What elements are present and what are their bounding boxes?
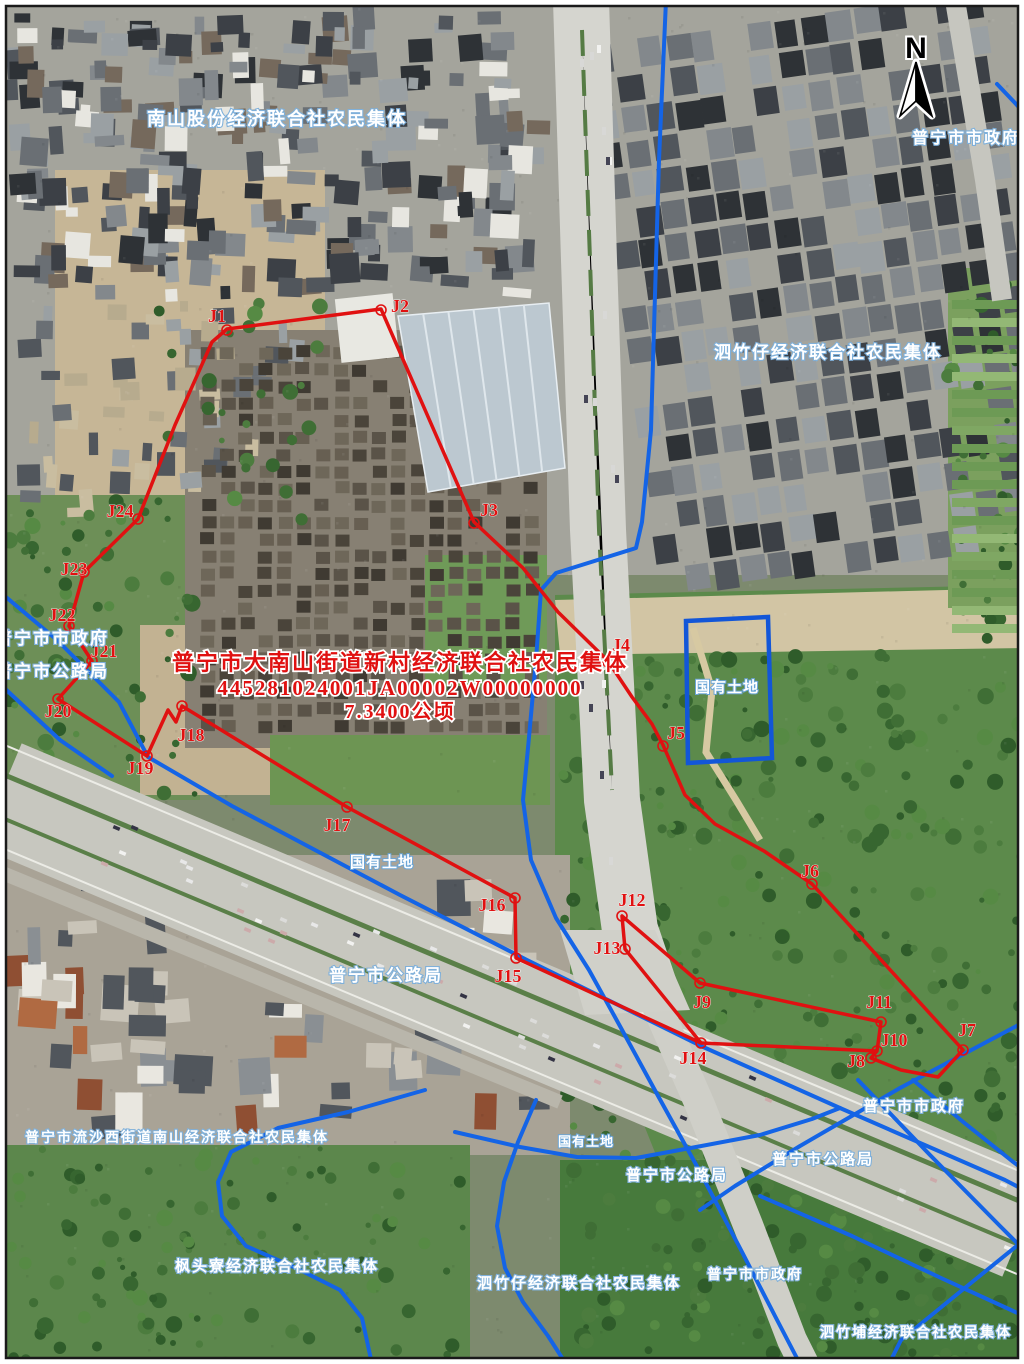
grain (381, 1206, 384, 1209)
grain (992, 19, 995, 22)
vegetation (852, 1033, 863, 1044)
vegetation (14, 650, 24, 660)
vegetation (984, 596, 991, 603)
grain (943, 467, 946, 470)
vertex-label-J24: J24 (107, 501, 134, 521)
village-roof (277, 500, 291, 512)
grain (286, 390, 289, 393)
village-roof (298, 705, 312, 717)
vegetation (282, 384, 298, 400)
grain (1002, 682, 1005, 685)
grain (761, 299, 764, 302)
building-block (6, 79, 18, 100)
village-roof (200, 685, 214, 697)
grain (492, 1246, 495, 1249)
grain (272, 97, 275, 100)
building-block (382, 161, 412, 188)
field-strip (952, 336, 1022, 345)
building-block (742, 191, 768, 221)
building-block (670, 65, 698, 96)
building-block (352, 27, 365, 49)
building-block (408, 38, 433, 62)
vertex-label-J15: J15 (495, 966, 522, 986)
building-block (895, 499, 922, 526)
building-block (39, 178, 67, 206)
building-block (130, 1039, 166, 1055)
grain (703, 698, 706, 701)
village-roof (258, 585, 272, 597)
grain (214, 1337, 217, 1340)
grain (907, 608, 910, 611)
grain (680, 887, 683, 890)
state-land-label: 国有土地 (695, 678, 759, 696)
vegetation (652, 1243, 661, 1252)
vehicle (602, 680, 606, 688)
building-block (835, 274, 859, 302)
building-block (884, 435, 908, 463)
village-roof (487, 551, 501, 563)
grain (651, 95, 654, 98)
village-roof (278, 413, 292, 425)
building-block (297, 137, 318, 153)
building-block (126, 168, 149, 193)
building-block (894, 303, 922, 334)
grain (853, 841, 856, 844)
building-block (783, 283, 810, 313)
building-block (392, 207, 409, 227)
grain (632, 365, 635, 368)
vegetation (602, 1316, 616, 1330)
state-land-label: 国有土地 (350, 853, 414, 871)
building-block (632, 170, 655, 197)
building-block (702, 495, 727, 527)
grain (846, 762, 849, 765)
grain (666, 830, 669, 833)
building-block (872, 136, 900, 168)
grain (31, 962, 34, 965)
vegetation (312, 299, 328, 315)
grain (343, 787, 346, 790)
village-roof (239, 398, 253, 410)
warehouse-roof (398, 303, 565, 492)
building-block (180, 472, 203, 490)
vegetation (848, 1262, 865, 1279)
building-block (634, 406, 661, 439)
grain (808, 624, 811, 627)
building-block (750, 453, 775, 480)
grain (956, 750, 959, 753)
vertex-label-J5: J5 (667, 723, 685, 743)
village-roof (219, 704, 233, 716)
vehicle (584, 395, 588, 403)
village-roof (353, 450, 367, 462)
grain (337, 568, 340, 571)
vegetation (241, 463, 250, 472)
grain (855, 1280, 858, 1283)
building-block (700, 95, 726, 124)
village-roof (315, 602, 329, 614)
vegetation (980, 452, 987, 459)
building-block (822, 179, 851, 210)
grain (319, 101, 322, 104)
vegetation (828, 706, 843, 721)
vegetation (92, 1293, 100, 1301)
building-block (866, 106, 890, 136)
vertex-label-J19: J19 (127, 758, 154, 778)
village-roof (316, 568, 330, 580)
vegetation (155, 497, 163, 505)
building-block (475, 114, 505, 144)
grain (756, 643, 759, 646)
vegetation (194, 1201, 208, 1215)
building-block (850, 374, 874, 401)
grain (323, 167, 326, 170)
vegetation (847, 669, 859, 681)
village-roof (278, 348, 292, 360)
village-roof (222, 380, 236, 392)
vegetation (952, 973, 968, 989)
vegetation (656, 787, 665, 796)
grain (519, 514, 522, 517)
grain (154, 20, 157, 23)
grain (290, 323, 293, 326)
vegetation (93, 602, 103, 612)
vegetation (303, 1332, 315, 1344)
land-cover-patch (270, 735, 550, 805)
vegetation (227, 1180, 234, 1187)
vegetation (827, 663, 833, 669)
building-block (229, 62, 247, 73)
grain (149, 1094, 152, 1097)
building-block (142, 40, 157, 50)
vegetation (806, 893, 822, 909)
village-roof (372, 432, 386, 444)
grain (450, 1184, 453, 1187)
vegetation (774, 1047, 787, 1060)
vegetation (662, 703, 668, 709)
vegetation (877, 685, 890, 698)
grain (686, 197, 689, 200)
vegetation (560, 915, 569, 924)
grain (645, 720, 648, 723)
building-block (71, 187, 88, 204)
grain (784, 613, 787, 616)
building-block (306, 277, 334, 292)
field-strip (952, 372, 1022, 381)
building-block (491, 32, 515, 51)
building-block (791, 551, 815, 580)
building-block (836, 74, 864, 105)
grain (798, 370, 801, 373)
building-block (749, 55, 773, 85)
vegetation (974, 1089, 987, 1102)
grain (48, 230, 51, 233)
building-block (115, 1092, 142, 1130)
vegetation (747, 1288, 752, 1293)
village-roof (258, 552, 272, 564)
vegetation (227, 1197, 240, 1210)
grain (527, 1099, 530, 1102)
village-roof (373, 601, 387, 613)
grain (346, 423, 349, 426)
village-roof (257, 703, 271, 715)
grain (204, 965, 207, 968)
vegetation (962, 962, 970, 970)
village-roof (354, 583, 368, 595)
building-block (833, 444, 860, 475)
vegetation (977, 688, 993, 704)
grain (822, 837, 825, 840)
vegetation (149, 1295, 157, 1303)
grain (704, 507, 707, 510)
building-block (873, 536, 898, 563)
building-block (787, 118, 814, 150)
building-block (388, 226, 413, 253)
vegetation (302, 420, 317, 435)
grain (224, 1243, 227, 1246)
grain (66, 1164, 69, 1167)
grain (837, 152, 840, 155)
vegetation (819, 1245, 833, 1259)
vegetation (597, 1293, 610, 1306)
building-block (165, 34, 192, 57)
village-roof (409, 637, 423, 649)
grain (752, 798, 755, 801)
grain (883, 12, 886, 15)
building-block (138, 207, 149, 231)
building-block (166, 319, 181, 332)
vegetation (730, 775, 741, 786)
building-block (108, 304, 127, 320)
grain (262, 1082, 265, 1085)
grain (222, 514, 225, 517)
village-roof (431, 585, 445, 597)
building-block (477, 11, 501, 24)
grain (746, 627, 749, 630)
building-block (694, 228, 721, 258)
grain (841, 825, 844, 828)
village-roof (469, 552, 483, 564)
vertex-label-J23: J23 (61, 559, 88, 579)
village-roof (449, 551, 463, 563)
vegetation (169, 752, 176, 759)
grain (939, 1093, 942, 1096)
building-block (286, 219, 316, 235)
village-roof (411, 585, 425, 597)
vegetation (692, 1238, 706, 1252)
grain (279, 497, 282, 500)
grain (696, 361, 699, 364)
village-roof (336, 379, 350, 391)
village-roof (200, 532, 214, 544)
village-roof (391, 533, 405, 545)
vegetation (102, 1231, 119, 1248)
vegetation (908, 1348, 916, 1356)
village-roof (201, 620, 215, 632)
grain (394, 1141, 397, 1144)
vegetation (658, 824, 667, 833)
building-block (666, 33, 694, 61)
grain (881, 636, 884, 639)
vegetation (775, 929, 790, 944)
village-roof (354, 637, 368, 649)
vehicle (590, 52, 594, 60)
building-block (726, 258, 752, 289)
grain (336, 522, 339, 525)
field-strip (952, 480, 1022, 489)
building-block (912, 230, 938, 262)
grain (863, 101, 866, 104)
grain (251, 33, 254, 36)
grain (178, 586, 181, 589)
building-block (48, 126, 63, 155)
vegetation (145, 1167, 153, 1175)
village-roof (334, 467, 348, 479)
cadastral-map-canvas: J1J2J3J4J5J6J7J8J9J10J11J12J13J14J15J16J… (0, 0, 1024, 1364)
grain (924, 320, 927, 323)
grain (179, 1164, 182, 1167)
building-block (368, 211, 388, 223)
village-roof (335, 635, 349, 647)
building-block (815, 113, 840, 140)
vegetation (219, 409, 226, 416)
grain (85, 1189, 88, 1192)
vegetation (370, 1238, 377, 1245)
grain (223, 610, 226, 613)
vegetation (132, 1290, 148, 1306)
vegetation (746, 878, 760, 892)
vegetation (192, 791, 198, 797)
grain (714, 476, 717, 479)
vegetation (844, 1239, 857, 1252)
building-block (94, 60, 106, 78)
building-block (627, 336, 654, 364)
grain (693, 589, 696, 592)
grain (27, 1108, 30, 1111)
grain (954, 576, 957, 579)
building-block (719, 223, 749, 254)
village-roof (506, 517, 520, 529)
vegetation (810, 732, 825, 747)
vertex-label-J22: J22 (49, 605, 76, 625)
grain (648, 287, 651, 290)
owner-label: 普宁市市政府 (0, 628, 109, 648)
grain (873, 103, 876, 106)
village-roof (314, 398, 328, 410)
grain (475, 542, 478, 545)
vegetation (891, 829, 901, 839)
vegetation (730, 931, 736, 937)
building-block (238, 1057, 272, 1095)
grain (572, 900, 575, 903)
village-roof (447, 535, 461, 547)
village-roof (335, 433, 349, 445)
village-roof (506, 533, 520, 545)
village-roof (468, 721, 482, 733)
grain (753, 1010, 756, 1013)
building-block (165, 229, 185, 242)
vegetation (762, 1179, 774, 1191)
vegetation (12, 1173, 24, 1185)
village-roof (449, 567, 463, 579)
building-block (149, 411, 164, 422)
north-arrow-label: N (905, 32, 927, 65)
grain (486, 646, 489, 649)
cadastral-map-page: J1J2J3J4J5J6J7J8J9J10J11J12J13J14J15J16J… (0, 0, 1024, 1364)
grain (304, 16, 307, 19)
vegetation (853, 1006, 860, 1013)
grain (387, 395, 390, 398)
building-block (785, 315, 814, 343)
grain (348, 757, 351, 760)
grain (88, 111, 91, 114)
vegetation (165, 516, 171, 522)
village-roof (373, 619, 387, 631)
building-block (89, 432, 98, 455)
building-block (29, 421, 39, 443)
vertex-label-J9: J9 (693, 992, 711, 1012)
grain (956, 150, 959, 153)
village-roof (334, 365, 348, 377)
village-roof (203, 516, 217, 528)
grain (596, 1315, 599, 1318)
grain (299, 459, 302, 462)
village-roof (391, 500, 405, 512)
building-block (826, 410, 854, 441)
vegetation (105, 530, 112, 537)
field-strip (952, 354, 1022, 363)
grain (376, 1290, 379, 1293)
building-block (918, 264, 944, 292)
grain (490, 156, 493, 159)
village-roof (203, 413, 217, 425)
vertex-label-J1: J1 (208, 306, 226, 326)
grain (936, 184, 939, 187)
building-block (302, 70, 315, 83)
village-roof (391, 635, 405, 647)
vegetation (287, 435, 297, 445)
vegetation (609, 1115, 617, 1123)
building-block (479, 62, 507, 77)
vertex-label-J10: J10 (881, 1030, 908, 1050)
grain (519, 1099, 522, 1102)
vegetation (287, 1166, 297, 1176)
grain (789, 173, 792, 176)
grain (194, 32, 197, 35)
village-roof (448, 634, 462, 646)
vegetation (125, 577, 140, 592)
vegetation (657, 802, 664, 809)
village-roof (295, 362, 309, 374)
building-block (741, 387, 765, 417)
grain (789, 438, 792, 441)
building-block (68, 920, 98, 935)
grain (315, 221, 318, 224)
vehicle (589, 704, 593, 712)
vegetation (788, 948, 803, 963)
village-roof (279, 517, 293, 529)
vegetation (162, 1242, 173, 1253)
grain (436, 534, 439, 537)
building-block (626, 140, 651, 169)
grain (107, 1168, 110, 1171)
vegetation (814, 1013, 829, 1028)
grain (454, 148, 457, 151)
vegetation (194, 1315, 201, 1322)
building-block (927, 531, 952, 560)
building-block (210, 42, 223, 52)
village-roof (222, 637, 236, 649)
